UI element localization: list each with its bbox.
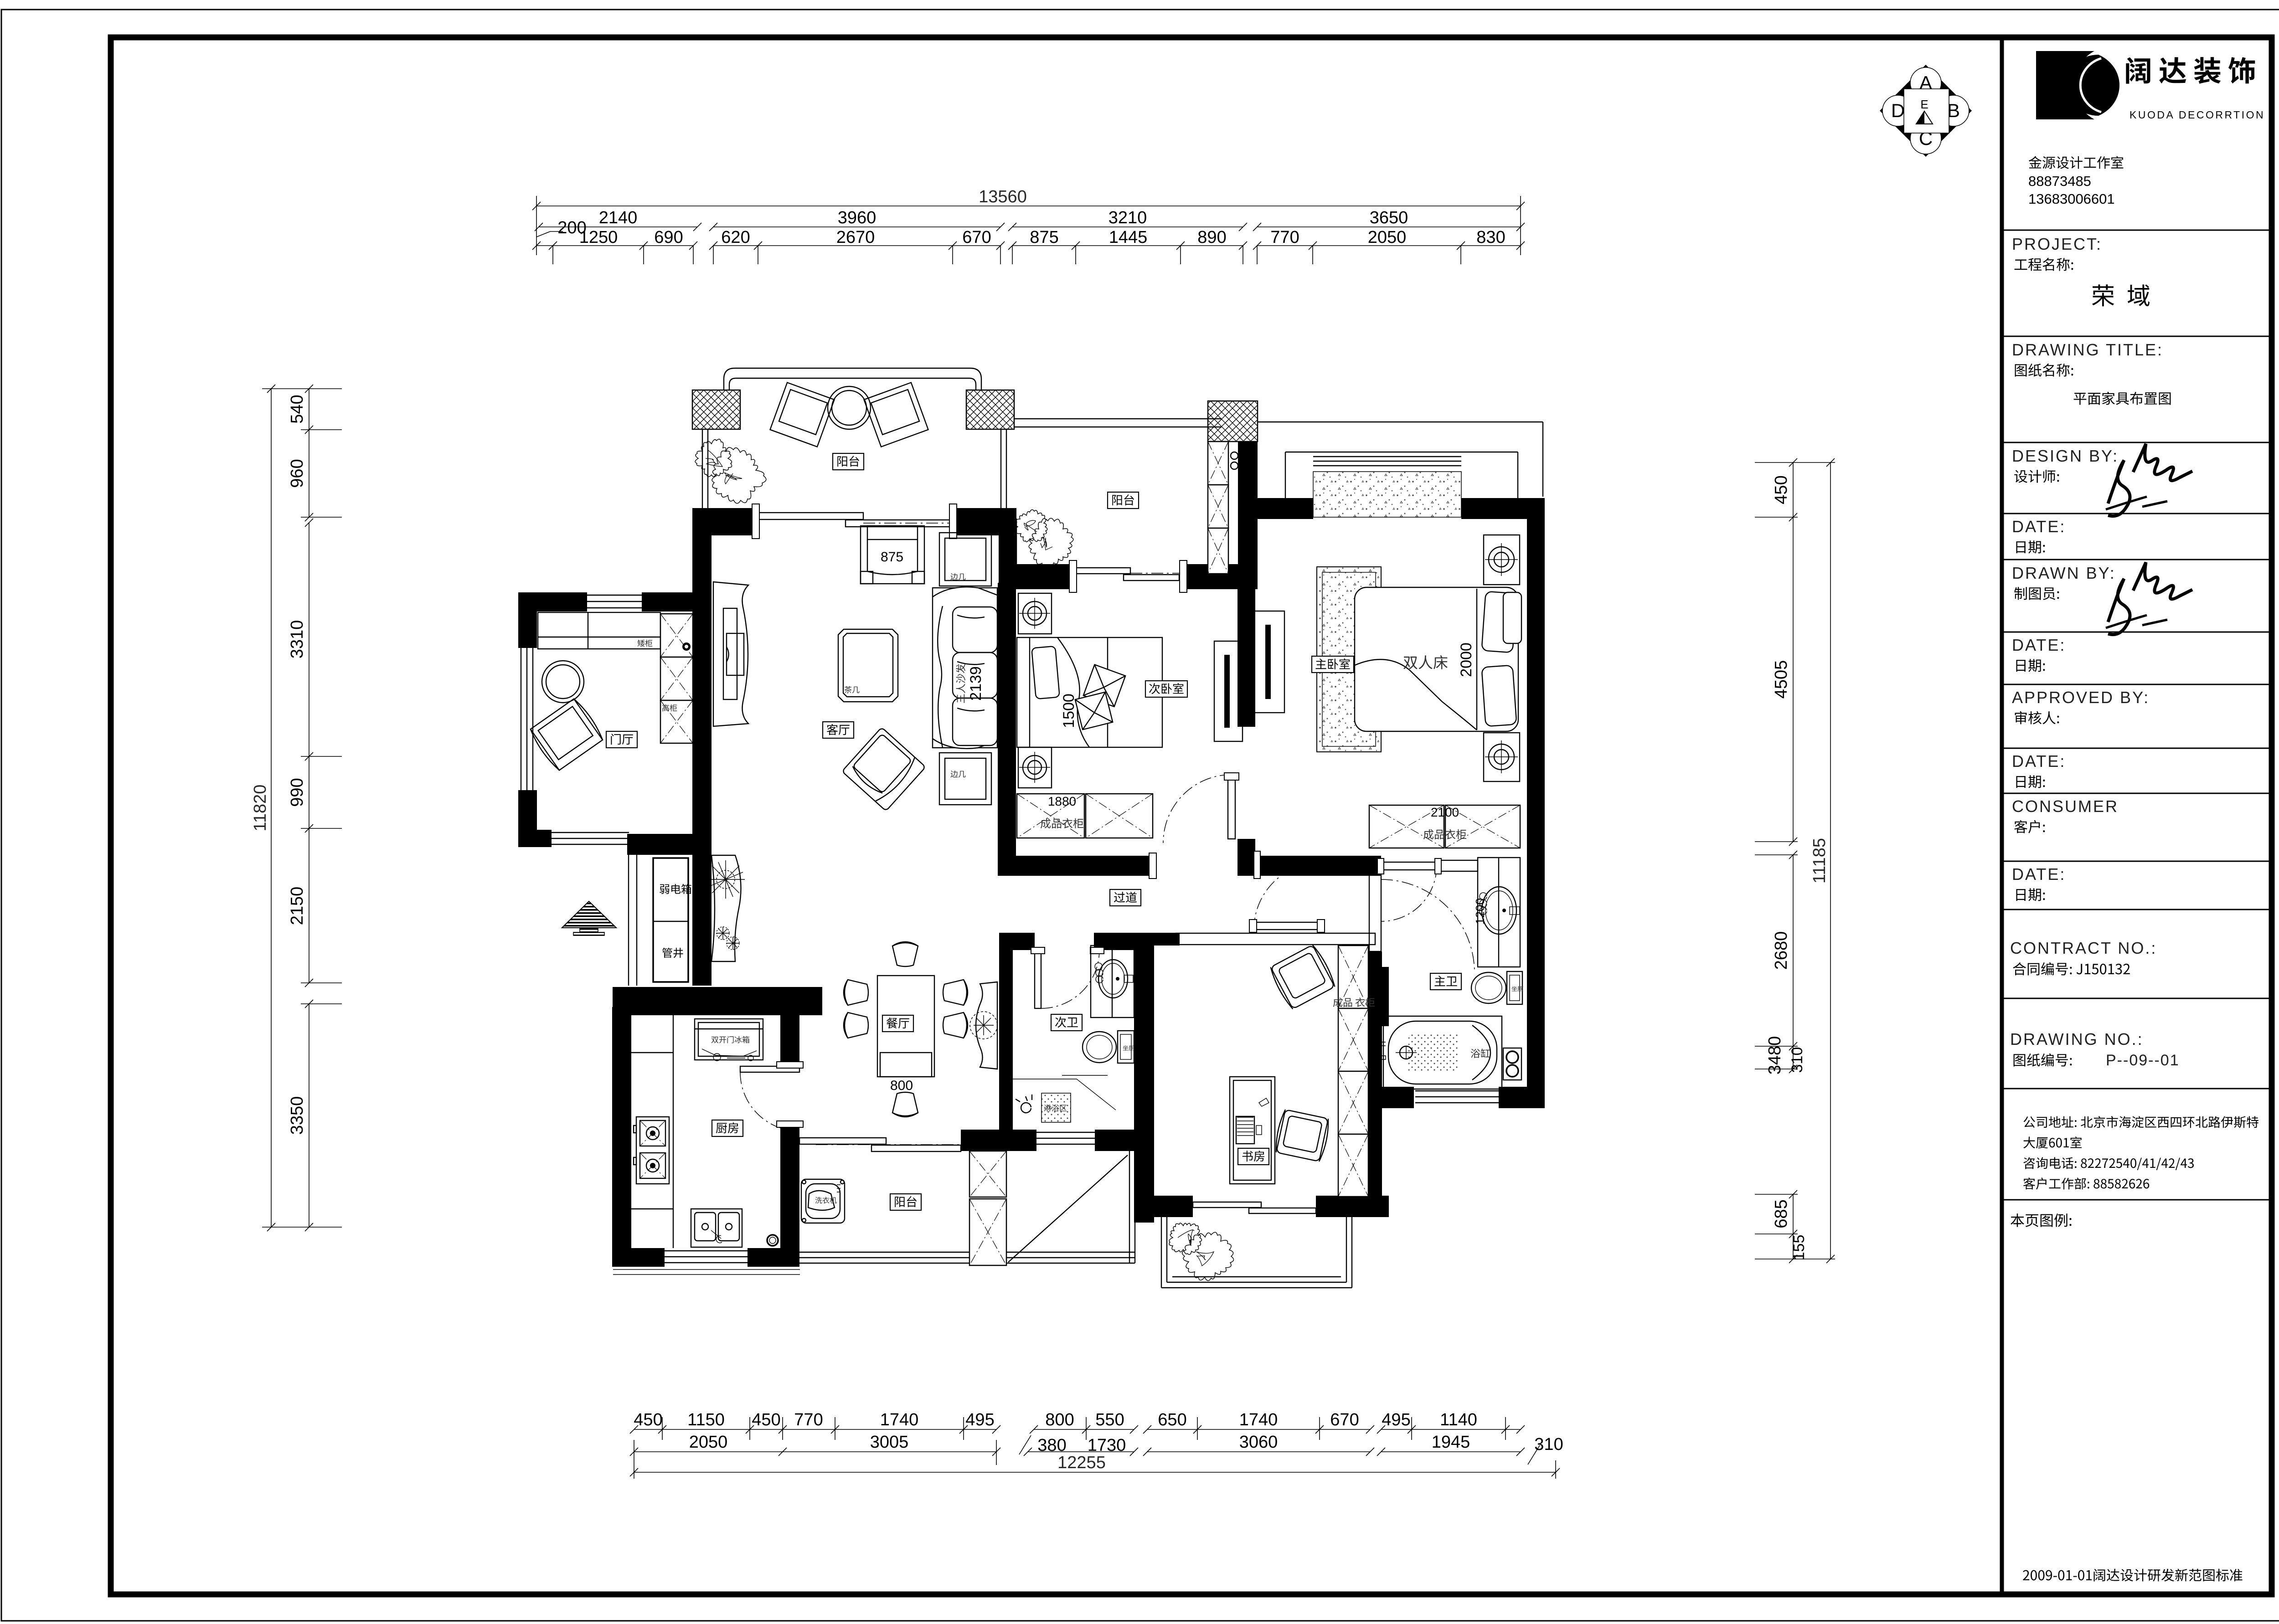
svg-text:2100: 2100 xyxy=(1431,805,1459,819)
svg-text:380: 380 xyxy=(1037,1436,1066,1455)
svg-text:13683006601: 13683006601 xyxy=(2028,191,2115,207)
svg-text:DRAWING TITLE:: DRAWING TITLE: xyxy=(2012,340,2163,359)
svg-text:1140: 1140 xyxy=(1440,1410,1477,1429)
svg-text:13560: 13560 xyxy=(979,187,1027,206)
svg-text:3210: 3210 xyxy=(1109,208,1147,227)
svg-text:495: 495 xyxy=(965,1410,994,1429)
svg-text:650: 650 xyxy=(1158,1410,1186,1429)
svg-text:960: 960 xyxy=(288,459,307,488)
svg-text:11185: 11185 xyxy=(1810,838,1829,884)
svg-text:875: 875 xyxy=(881,550,903,565)
svg-text:875: 875 xyxy=(1030,228,1058,247)
svg-text:2000: 2000 xyxy=(1458,642,1475,677)
svg-text:1200: 1200 xyxy=(1473,898,1487,925)
svg-text:550: 550 xyxy=(1095,1410,1124,1429)
svg-text:2139: 2139 xyxy=(967,666,985,701)
svg-text:3350: 3350 xyxy=(288,1096,307,1135)
svg-text:830: 830 xyxy=(1476,228,1505,247)
svg-text:1150: 1150 xyxy=(687,1410,725,1429)
svg-text:3060: 3060 xyxy=(1239,1433,1278,1452)
svg-text:450: 450 xyxy=(1772,475,1791,504)
svg-text:E: E xyxy=(1920,98,1928,111)
svg-text:1945: 1945 xyxy=(1432,1433,1470,1452)
svg-text:CONSUMER: CONSUMER xyxy=(2012,797,2119,816)
svg-text:685: 685 xyxy=(1772,1199,1791,1228)
svg-text:DATE:: DATE: xyxy=(2012,636,2066,654)
svg-text:DATE:: DATE: xyxy=(2012,517,2066,536)
svg-text:2050: 2050 xyxy=(1368,228,1407,247)
svg-text:3650: 3650 xyxy=(1370,208,1408,227)
svg-text:3480: 3480 xyxy=(1765,1036,1784,1075)
svg-text:2140: 2140 xyxy=(599,208,638,227)
svg-text:310: 310 xyxy=(1789,1047,1806,1073)
svg-text:690: 690 xyxy=(654,228,683,247)
svg-text:990: 990 xyxy=(288,778,307,807)
svg-text:1250: 1250 xyxy=(579,228,618,247)
svg-text:450: 450 xyxy=(752,1410,780,1429)
svg-text:800: 800 xyxy=(890,1078,913,1093)
svg-text:495: 495 xyxy=(1382,1410,1410,1429)
svg-text:DATE:: DATE: xyxy=(2012,865,2066,884)
svg-text:88873485: 88873485 xyxy=(2028,173,2091,189)
svg-text:KUODA DECORRTION: KUODA DECORRTION xyxy=(2129,109,2265,121)
svg-text:1880: 1880 xyxy=(1048,794,1076,808)
svg-text:D: D xyxy=(1891,100,1905,121)
svg-text:PROJECT:: PROJECT: xyxy=(2012,235,2102,253)
svg-text:12255: 12255 xyxy=(1057,1453,1106,1472)
svg-text:11820: 11820 xyxy=(251,785,270,832)
svg-text:770: 770 xyxy=(794,1410,823,1429)
svg-text:1500: 1500 xyxy=(1060,694,1078,728)
svg-text:890: 890 xyxy=(1197,228,1226,247)
svg-text:DRAWING NO.:: DRAWING NO.: xyxy=(2010,1030,2144,1048)
svg-text:2050: 2050 xyxy=(689,1433,728,1452)
svg-text:770: 770 xyxy=(1270,228,1299,247)
svg-text:APPROVED BY:: APPROVED BY: xyxy=(2012,688,2150,707)
svg-text:2680: 2680 xyxy=(1772,931,1791,970)
svg-text:3005: 3005 xyxy=(870,1433,909,1452)
svg-text:540: 540 xyxy=(288,395,307,423)
svg-text:2150: 2150 xyxy=(288,887,307,925)
svg-text:3310: 3310 xyxy=(288,620,307,659)
svg-text:1445: 1445 xyxy=(1109,228,1148,247)
svg-text:2670: 2670 xyxy=(836,228,875,247)
svg-text:P--09--01: P--09--01 xyxy=(2106,1052,2180,1069)
svg-text:DRAWN BY:: DRAWN BY: xyxy=(2012,564,2116,582)
svg-text:620: 620 xyxy=(721,228,750,247)
svg-text:1740: 1740 xyxy=(880,1410,919,1429)
svg-text:CONTRACT NO.:: CONTRACT NO.: xyxy=(2010,939,2157,957)
svg-text:1740: 1740 xyxy=(1239,1410,1278,1429)
svg-text:670: 670 xyxy=(962,228,991,247)
svg-text:4505: 4505 xyxy=(1772,660,1791,699)
svg-text:450: 450 xyxy=(634,1410,662,1429)
svg-text:155: 155 xyxy=(1790,1235,1808,1261)
svg-text:310: 310 xyxy=(1534,1435,1563,1454)
svg-text:3960: 3960 xyxy=(838,208,877,227)
svg-text:670: 670 xyxy=(1330,1410,1359,1429)
svg-text:800: 800 xyxy=(1045,1410,1074,1429)
svg-text:DESIGN BY:: DESIGN BY: xyxy=(2012,447,2119,465)
svg-text:DATE:: DATE: xyxy=(2012,752,2066,771)
svg-text:1730: 1730 xyxy=(1088,1436,1126,1455)
